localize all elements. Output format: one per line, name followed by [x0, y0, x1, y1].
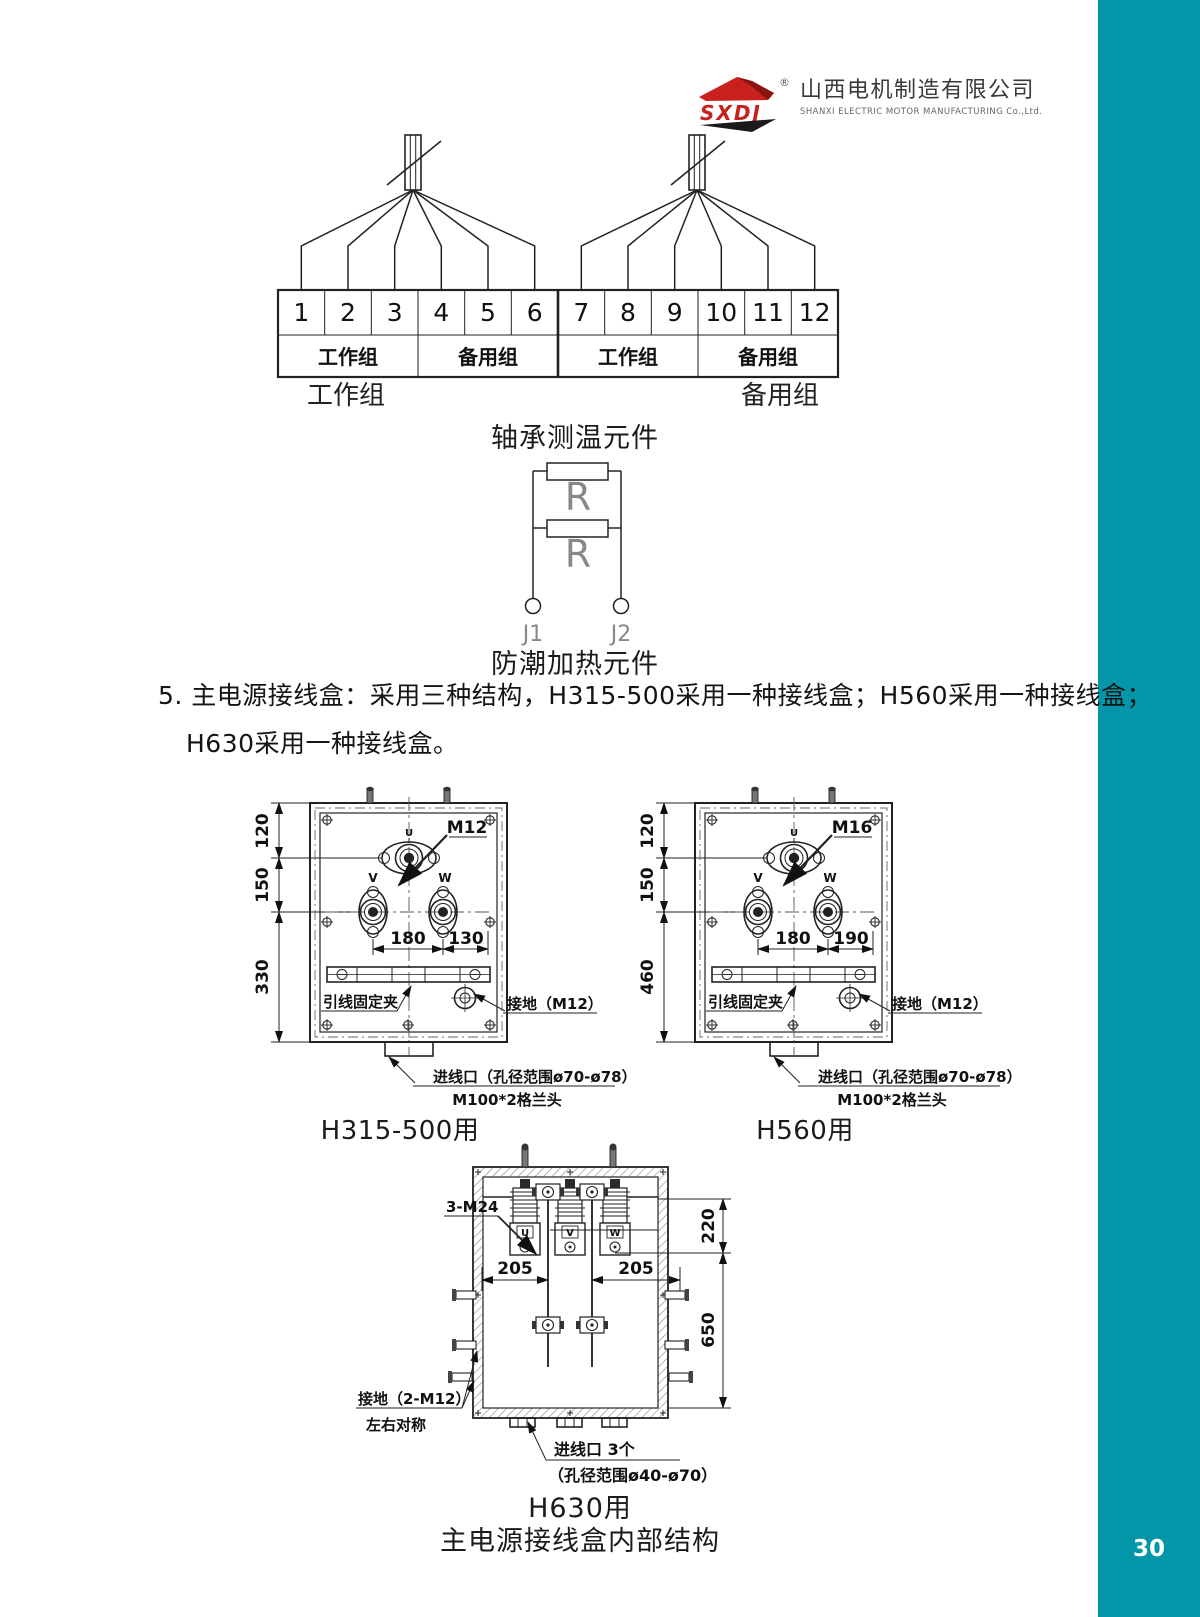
cable-clamp-mid: [576, 1317, 608, 1333]
dim-190: 190: [833, 929, 869, 949]
entry-label-line2: （孔径范围ø40-ø70）: [548, 1466, 717, 1485]
group-cell-label: 备用组: [457, 345, 518, 369]
ground-label-line1: 接地（2-M12）: [358, 1390, 470, 1408]
group-cell-label: 备用组: [737, 345, 798, 369]
junction-box-h630-drawing: U V W: [350, 1115, 830, 1490]
terminal-number: 3: [387, 298, 403, 327]
clamp-label: 引线固定夹: [323, 993, 398, 1011]
resistor-label: R: [565, 475, 591, 519]
dim-205-right: 205: [618, 1259, 654, 1279]
company-name-block: 山西电机制造有限公司 SHANXI ELECTRIC MOTOR MANUFAC…: [800, 72, 1042, 117]
dim-180: 180: [390, 929, 426, 949]
registered-mark: ®: [779, 76, 790, 89]
working-group-label: 工作组: [307, 381, 385, 411]
bearing-sensor-terminal-diagram: 1 2 3 4 5 6 7 8 9 10 11 12 工作组 备用组 工作组 备…: [265, 128, 855, 413]
dim-330: 330: [253, 959, 273, 995]
ground-bolt-left: [448, 1371, 472, 1383]
terminal-strip-table: 1 2 3 4 5 6 7 8 9 10 11 12 工作组 备用组 工作组 备…: [278, 290, 838, 377]
entry-label-line1: 进线口（孔径范围ø70-ø78）: [818, 1068, 1022, 1086]
bolt-spec-label: M16: [832, 818, 873, 838]
spacing-dimensions: 205 205: [482, 1259, 680, 1291]
dim-460: 460: [638, 959, 658, 995]
box3-subcaption: 主电源接线盒内部结构: [395, 1519, 765, 1558]
wall-bolts-right: [665, 1289, 693, 1383]
dim-130: 130: [448, 929, 484, 949]
top-bolts: [522, 1144, 617, 1168]
terminal-u-label: U: [790, 828, 798, 839]
cable-clamp-mid: [532, 1317, 564, 1333]
dim-120: 120: [253, 813, 273, 849]
dim-150: 150: [638, 867, 658, 903]
terminal-v-label: V: [368, 871, 378, 885]
wall-bolt-left: [452, 1289, 476, 1301]
horizontal-dimensions: 180 130: [373, 929, 488, 955]
horizontal-dimensions: 180 190: [758, 929, 873, 955]
probe-lead-wires: [301, 190, 814, 290]
cable-clamp-top: [576, 1184, 608, 1200]
terminal-v-label: V: [753, 871, 763, 885]
terminal-number: 11: [752, 298, 784, 327]
heater-circuit-diagram: R R J1 J2: [485, 438, 675, 650]
terminal-j2-circle: [614, 599, 629, 614]
ground-screw: [836, 984, 864, 1012]
clamp-label: 引线固定夹: [708, 993, 783, 1011]
dim-150: 150: [253, 867, 273, 903]
resistor-label: R: [565, 532, 591, 576]
terminal-j1-circle: [526, 599, 541, 614]
ground-label: 接地（M12）: [507, 995, 603, 1013]
company-logo: SXDJ ® 山西电机制造有限公司 SHANXI ELECTRIC MOTOR …: [692, 72, 1042, 134]
terminal-number: 4: [433, 298, 449, 327]
dim-220: 220: [699, 1208, 719, 1244]
entry-label-line2: M100*2格兰头: [837, 1091, 947, 1109]
company-name-cn: 山西电机制造有限公司: [800, 72, 1042, 104]
backup-group-label: 备用组: [741, 381, 819, 411]
terminal-number: 2: [340, 298, 356, 327]
ground-label: 接地（M12）: [892, 995, 988, 1013]
terminal-number: 1: [293, 298, 309, 327]
terminal-w-label: W: [438, 871, 451, 885]
terminal-u-label: U: [405, 828, 413, 839]
brand-logo-icon: SXDJ ®: [692, 72, 790, 134]
bolt-spec-label: 3-M24: [446, 1198, 498, 1216]
lead-clamp-bar: [327, 967, 490, 982]
accent-sideband: [1098, 0, 1200, 1617]
section-5-text-line1: 5. 主电源接线盒：采用三种结构，H315-500采用一种接线盒；H560采用一…: [158, 676, 1152, 712]
terminal-number: 6: [527, 298, 543, 327]
company-name-en: SHANXI ELECTRIC MOTOR MANUFACTURING Co.,…: [800, 107, 1042, 117]
group-cell-label: 工作组: [598, 345, 658, 369]
terminal-number: 7: [573, 298, 589, 327]
terminal-number: 8: [620, 298, 636, 327]
wall-bolt-left: [452, 1339, 476, 1351]
dim-120: 120: [638, 813, 658, 849]
ground-label-line2: 左右对称: [365, 1416, 426, 1434]
entry-label-line2: M100*2格兰头: [452, 1091, 562, 1109]
terminal-number: 12: [799, 298, 831, 327]
cable-clamp-top: [532, 1184, 564, 1200]
entry-label-line1: 进线口 3个: [554, 1440, 636, 1459]
temperature-probe-right: [671, 135, 725, 190]
terminal-number: 10: [705, 298, 737, 327]
temperature-probe-left: [387, 135, 441, 190]
junction-box-h315-500-drawing: 120 150 330 U V W M12: [235, 755, 655, 1115]
bolt-spec-label: M12: [447, 818, 488, 838]
terminal-number: 9: [667, 298, 683, 327]
dim-650: 650: [699, 1312, 719, 1348]
ground-screw: [451, 984, 479, 1012]
terminal-w-label: W: [823, 871, 836, 885]
entry-label-line1: 进线口（孔径范围ø70-ø78）: [433, 1068, 637, 1086]
bottom-entry-tabs: [510, 1418, 627, 1427]
page-number: 30: [1098, 1536, 1200, 1562]
group-cell-label: 工作组: [318, 345, 378, 369]
junction-box-h560-drawing: 120 150 460 U V W M16: [620, 755, 1040, 1115]
dim-205-left: 205: [497, 1259, 533, 1279]
lead-clamp-bar: [712, 967, 875, 982]
manual-page: 30 SXDJ ® 山西电机制造有限公司 SHANXI ELECTRIC MOT…: [0, 0, 1200, 1617]
terminal-number: 5: [480, 298, 496, 327]
terminal-u-label: U: [521, 1228, 529, 1239]
dim-180: 180: [775, 929, 811, 949]
